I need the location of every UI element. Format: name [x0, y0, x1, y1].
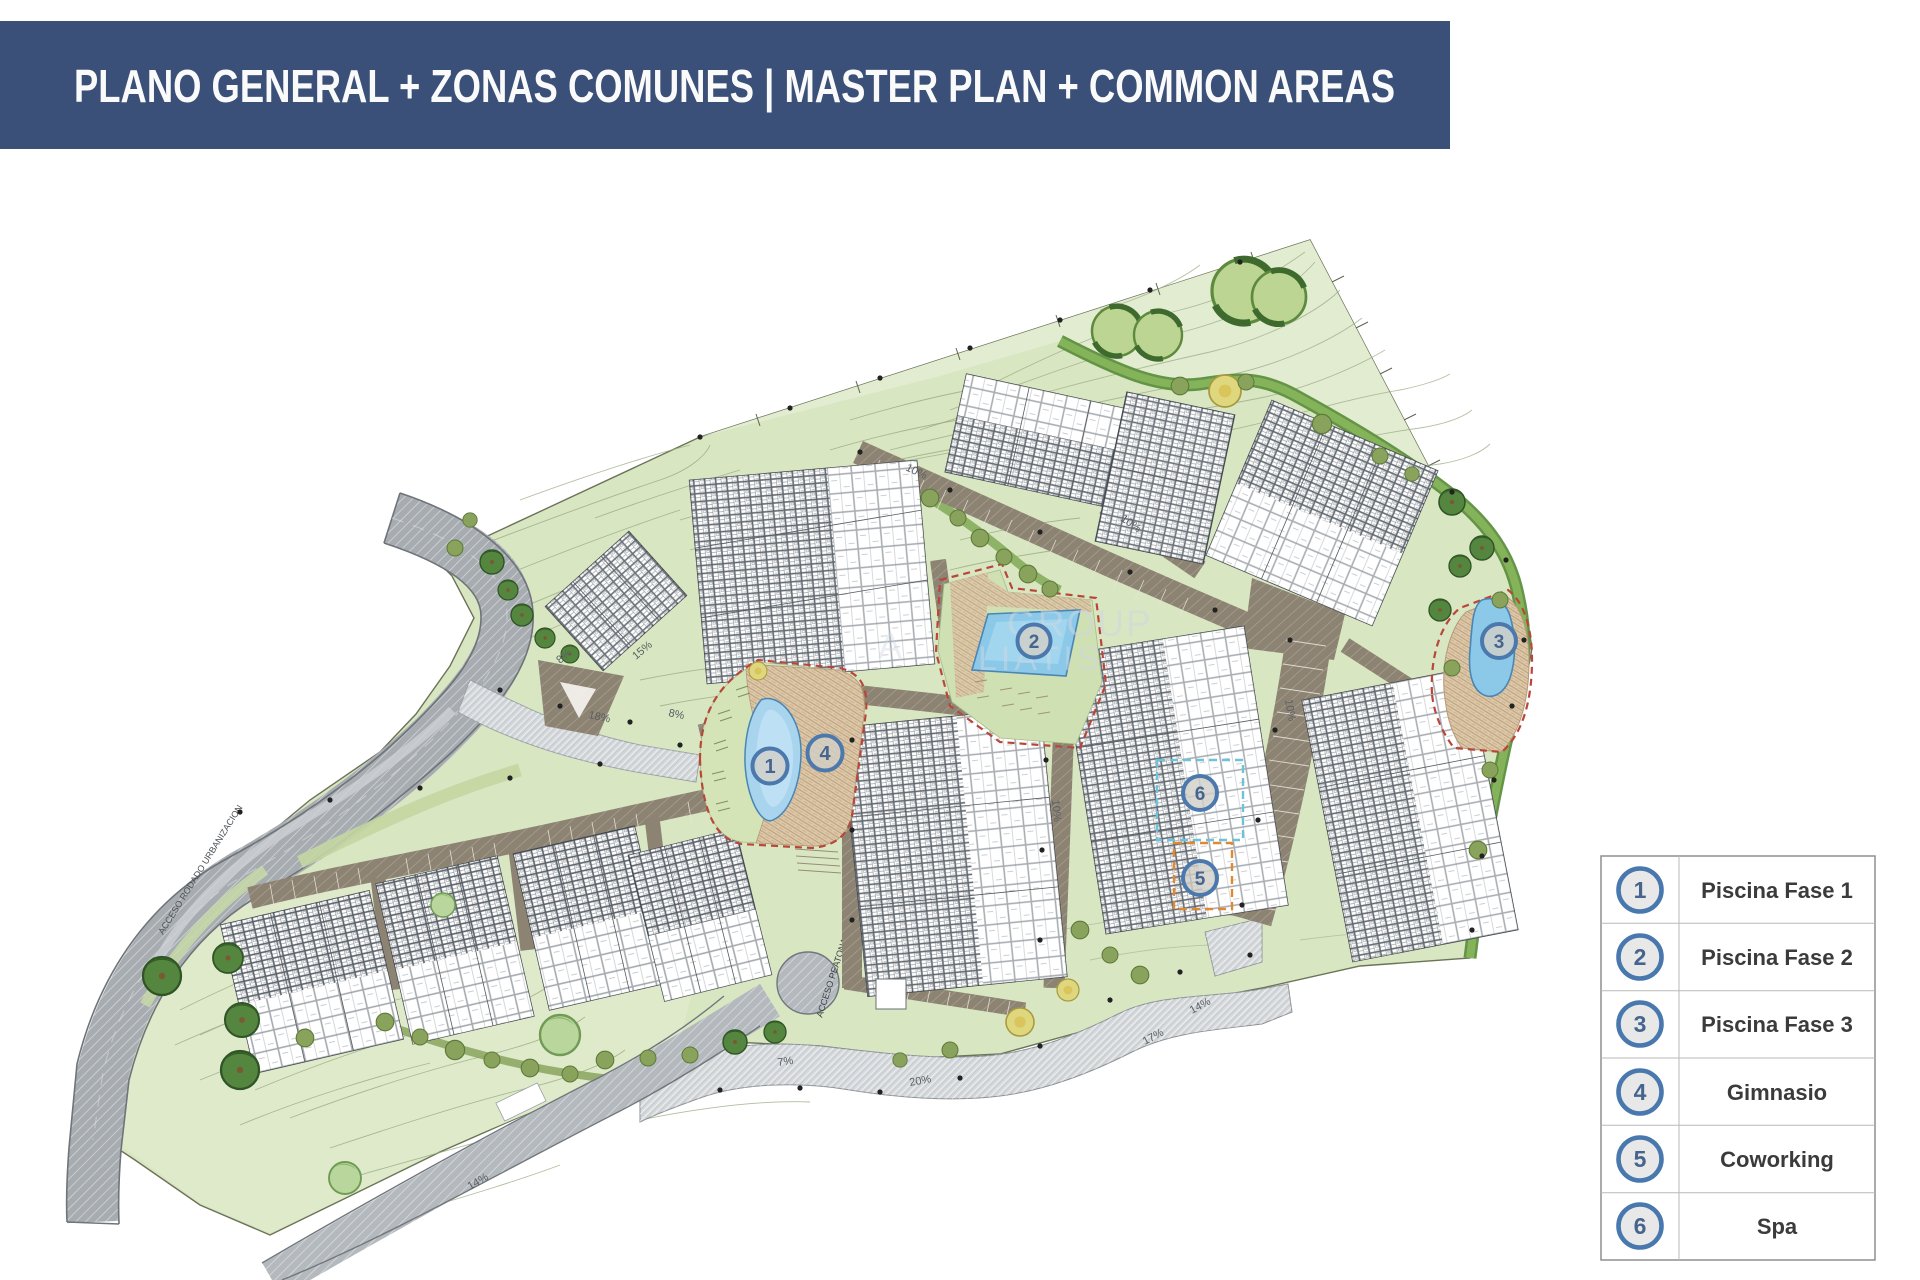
svg-text:Piscina Fase 2: Piscina Fase 2 — [1701, 945, 1853, 970]
svg-text:PLANO GENERAL + ZONAS COMUNES: PLANO GENERAL + ZONAS COMUNES | MASTER P… — [74, 60, 1395, 112]
svg-text:Coworking: Coworking — [1720, 1147, 1834, 1172]
svg-text:1: 1 — [1634, 877, 1647, 903]
svg-text:A: A — [878, 625, 902, 666]
svg-text:6: 6 — [1634, 1213, 1647, 1239]
svg-text:3: 3 — [1494, 632, 1505, 653]
svg-text:5: 5 — [1195, 869, 1206, 890]
svg-text:7%: 7% — [777, 1055, 795, 1069]
svg-text:Piscina Fase 3: Piscina Fase 3 — [1701, 1012, 1853, 1037]
svg-text:3: 3 — [1634, 1011, 1647, 1037]
svg-text:Piscina Fase 1: Piscina Fase 1 — [1701, 878, 1853, 903]
svg-text:4: 4 — [819, 743, 831, 765]
svg-text:6: 6 — [1195, 784, 1206, 805]
svg-text:10%: 10% — [1049, 799, 1063, 822]
svg-text:1: 1 — [764, 756, 775, 778]
svg-text:2: 2 — [1634, 944, 1647, 970]
svg-text:Gimnasio: Gimnasio — [1727, 1080, 1827, 1105]
svg-text:2: 2 — [1029, 632, 1040, 653]
svg-text:5: 5 — [1634, 1146, 1647, 1172]
svg-text:4: 4 — [1634, 1079, 1647, 1105]
svg-text:Spa: Spa — [1757, 1214, 1798, 1239]
